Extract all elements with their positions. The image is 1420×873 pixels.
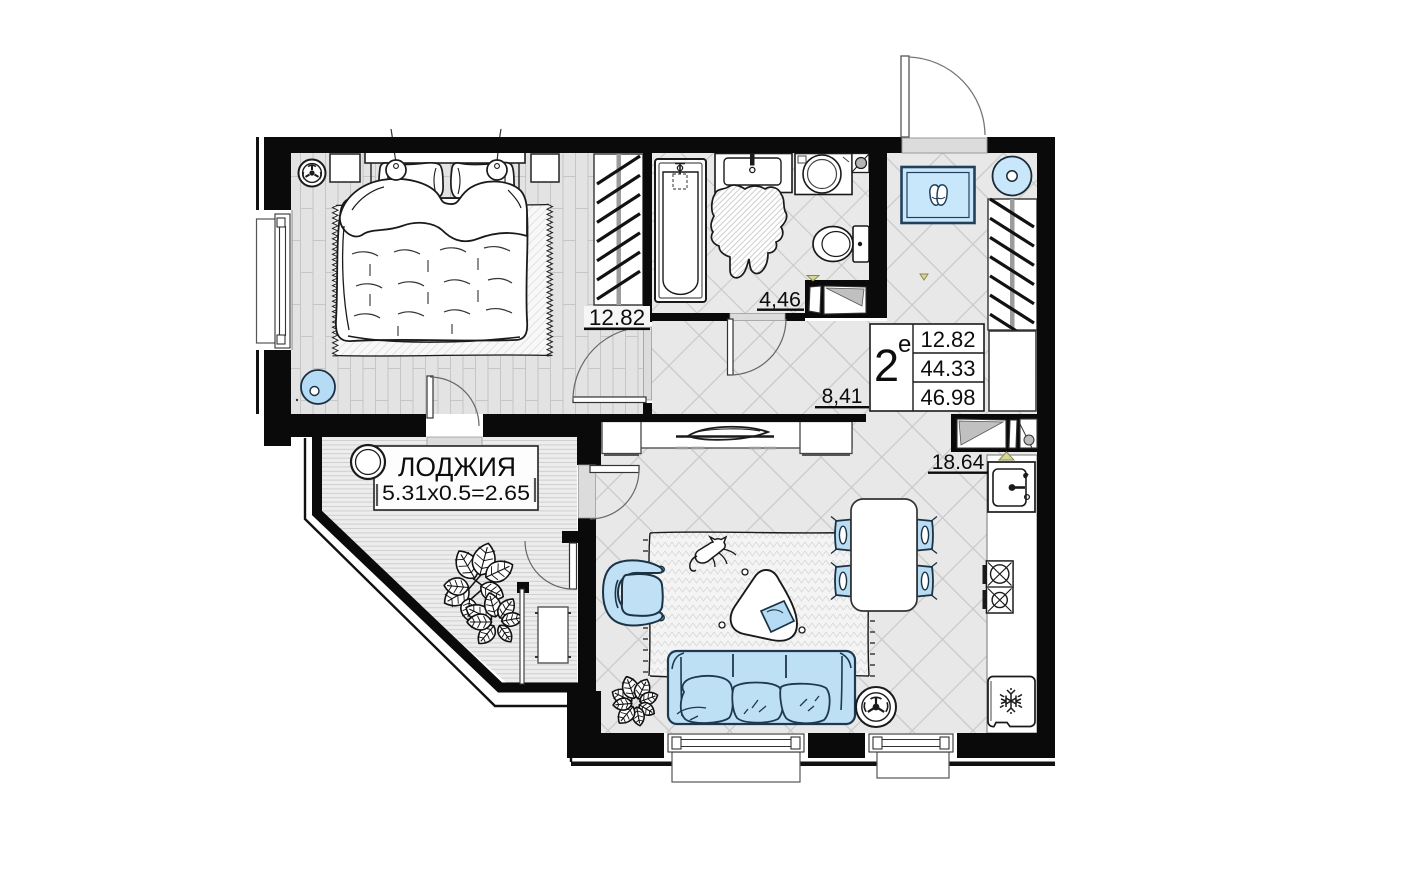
svg-text:12.82: 12.82 bbox=[920, 327, 975, 352]
svg-text:2: 2 bbox=[874, 340, 899, 391]
svg-text:12.82: 12.82 bbox=[589, 305, 645, 330]
svg-text:5.31х0.5=2.65: 5.31х0.5=2.65 bbox=[382, 481, 530, 505]
svg-text:18.64: 18.64 bbox=[932, 451, 985, 474]
svg-text:8,41: 8,41 bbox=[822, 385, 863, 408]
svg-text:44.33: 44.33 bbox=[920, 356, 975, 381]
svg-text:ЛОДЖИЯ: ЛОДЖИЯ bbox=[398, 452, 516, 482]
svg-text:4,46: 4,46 bbox=[759, 288, 801, 312]
svg-text:е: е bbox=[898, 331, 911, 358]
svg-text:46.98: 46.98 bbox=[920, 385, 975, 410]
